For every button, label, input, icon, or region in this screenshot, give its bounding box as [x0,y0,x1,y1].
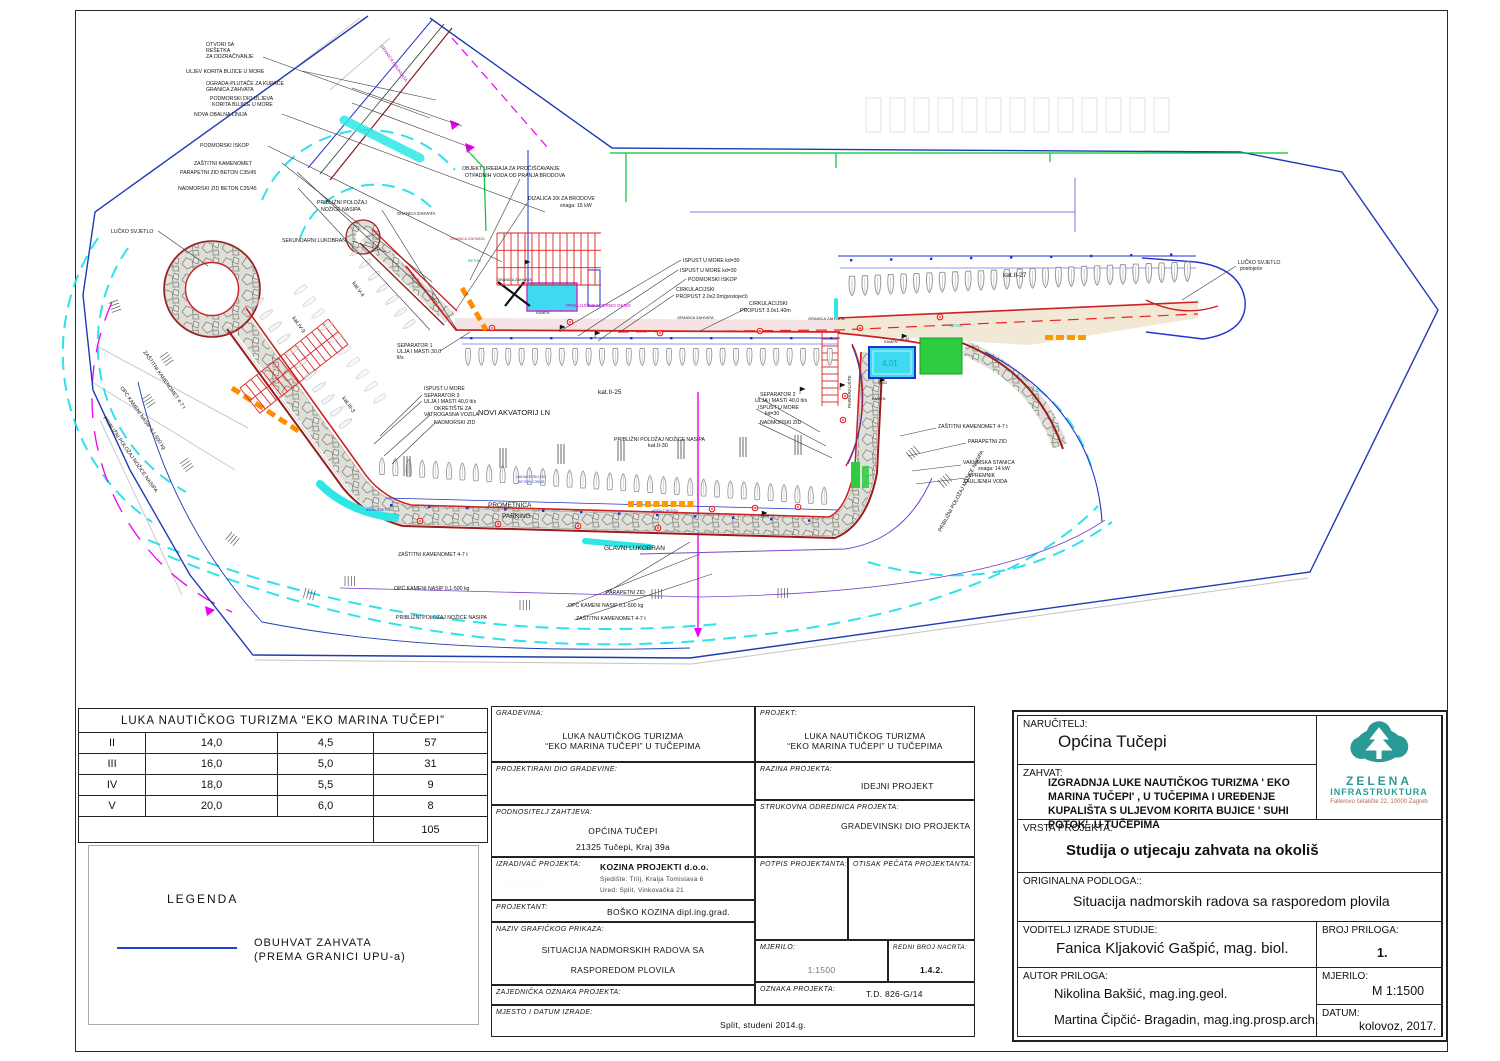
map-label: +1.63 [878,381,887,385]
cell-razina: RAZINA PROJEKTA: IDEJNI PROJEKT [755,762,975,800]
table-total-row: 105 [79,817,488,843]
cell-zahvat: ZAHVAT: IZGRADNJA LUKE NAUTIČKOG TURIZMA… [1018,765,1317,820]
legend-box: LEGENDA OBUHVAT ZAHVATA (PREMA GRANICI U… [88,845,479,1025]
cell-mjesto-datum: MJESTO I DATUM IZRADE: Split, studeni 20… [491,1005,975,1037]
cell-potpis: POTPIS PROJEKTANTA: [755,857,848,940]
cadastral-lines [92,18,1308,664]
map-label: kat.IV-9 [290,316,306,335]
map-label: NOVI AKVATORIJ LN [478,408,550,417]
map-label: PRIKLJUČNO MJERNO OKNO [566,302,631,308]
violet-lines [340,478,1105,597]
existing-structures [866,98,1169,132]
map-label: KAMEN [872,397,886,401]
travel-lift-icon [498,282,530,306]
legend-item-label: OBUHVAT ZAHVATA (PREMA GRANICI UPU-a) [254,936,406,965]
map-label: ISPUST U MORE [424,386,465,392]
map-label: ULJA I MASTI 40,0 lt/s [755,398,808,404]
map-label: PRIBLIŽNI POLOŽAJ [317,198,367,206]
stamp-fineprint: ········································… [500,884,578,888]
map-label: BETON [468,259,481,263]
map-label: kd=30 [765,411,779,417]
cell-vrsta: VRSTA PROJEKTA: Studija o utjecaju zahva… [1018,820,1442,873]
map-label: PROPUST 3.0x1.40m [740,308,791,314]
map-label: GRANICA ZAHVATA [497,278,532,282]
map-label: kat.II-25 [598,389,622,396]
map-label: OPĆ KAMENI NASIP 0,1-500 kg [394,585,470,592]
map-label: ZAŠTITNI KAMENOMET 4-7 t [576,615,646,622]
map-label: lt/s [397,355,404,361]
cell-gradevina: GRADEVINA: LUKA NAUTIČKOG TURIZMA “EKO M… [491,706,755,762]
cell-projektirani: PROJEKTIRANI DIO GRADEVINE: [491,762,755,805]
bollard-symbols [390,253,1172,521]
map-label: postojeće [1240,266,1262,272]
map-label: snaga: 14 kW [978,466,1010,472]
legend-title: LEGENDA [167,892,238,906]
map-label: KAMEN [536,311,550,315]
map-label: NOVA OBALNA LINIJA [194,112,248,118]
map-label: PARKING [502,513,531,520]
map-label: OPĆ KAMENI NASIP 0,1-500 kg [118,385,167,451]
map-label: OTPADNIH VODA OD PRANJA BRODOVA [465,173,566,179]
map-label: ULJEV KORITA BUJICE U MORE [186,69,265,75]
table-row: II14,0 4,557 [79,733,488,754]
map-label: NADMORSKI ZID [434,420,475,426]
map-label: LUČKO SVJETLO [111,228,153,235]
zelena-infrastruktura-logo: ZELENA INFRASTRUKTURA Fallerovo šetališt… [1317,716,1441,805]
cell-strukovna: STRUKOVNA ODREDNICA PROJEKTA: GRADEVINSK… [755,800,975,857]
moored-boats [251,246,1190,504]
cell-zajednicka: ZAJEDNIČKA OZNAKA PROJEKTA: [491,985,755,1005]
map-label: PODMORSKI ISKOP [200,143,250,149]
map-label: PARAPETNI ZID [606,590,645,596]
map-label: OPĆ KAMENI NASIP 0,1-500 kg [568,602,644,609]
map-label: PRIBLIŽNI POLOŽAJ NOŽICE NASIPA [936,448,986,533]
cell-otisak: OTISAK PEČATA PROJEKTANTA: [848,857,975,940]
cell-narucitelj: NARUČITELJ: Općina Tučepi [1018,716,1317,765]
map-label: ISPUST U MORE kd=30 [683,258,740,264]
map-label: PODMORSKI ISKOP [688,277,738,283]
map-label: +1.28 [760,514,769,518]
cell-voditelj: VODITELJ IZRADE STUDIJE: Fanica Kljakovi… [1018,922,1317,968]
sheet: { "vessel_table": { "title": "LUKA NAUTI… [0,0,1500,1061]
cell-naziv: NAZIV GRAFIČKOG PRIKAZA: SITUACIJA NADMO… [491,922,755,985]
map-label: +1.44 [900,337,909,341]
cell-oznaka: OZNAKA PROJEKTA: T.D. 826-G/14 [755,982,975,1005]
map-label: GRANICA OBUHVATA [379,44,408,83]
map-label: kat.II-30 [648,443,668,449]
cell-logo: ZELENA INFRASTRUKTURA Fallerovo šetališt… [1317,716,1442,820]
map-label: GRANICA ZAHVATA [397,211,436,216]
map-label: 4.01 [882,359,898,368]
study-title-block-inner: NARUČITELJ: Općina Tučepi ZAHVAT: IZGRAD… [1017,715,1443,1037]
map-label: PARAPETNI ZID [968,439,1007,445]
map-label: OGRADA-PLUTAČE ZA KUPAČE [206,80,284,87]
map-label: ULJA I MASTI 40,0 lt/s [424,399,477,405]
map-label: NADMORSKI ZID BETON C35/45 [178,186,257,192]
cell-projektant: PROJEKTANT: BOŠKO KOZINA dipl.ing.grad. [491,900,755,922]
cell-autor: AUTOR PRILOGA: Nikolina Bakšić, mag.ing.… [1018,968,1317,1036]
map-label: PROMETNICA [488,502,532,509]
cell-izradivac: IZRADIVAČ PROJEKTA: ····················… [491,857,755,900]
map-label: VATROGASNA VOZILA [424,412,479,418]
breakwater-stones [165,225,1060,536]
map-label: BETON [950,324,963,328]
cell-mjerilo-study: MJERILO: M 1:1500 [1317,968,1442,1005]
map-label: GLAVNI LUKOBRAN [604,545,665,552]
map-label: snaga: 15 kW [560,203,592,209]
table-row: III16,0 5,031 [79,754,488,775]
map-label: KORITA BUJICE U MORE [212,102,273,108]
map-label: OBJEKT UREĐAJA ZA PROČIŠĆAVANJE [462,165,560,172]
map-label: ZAŠTITNI KAMENOMET [194,160,253,167]
cell-broj-priloga: BROJ PRILOGA: 1. [1317,922,1442,968]
map-label: OKRETIŠTE ZA [434,405,472,412]
map-label: ISPUST U MORE kd=30 [680,268,737,274]
cell-redni-broj: REDNI BROJ NACRTA: 1.4.2. [888,940,975,982]
map-label: GRANICA ZAHVATA [677,315,714,320]
map-label: SEKUNDARNI LUKOBRAN [282,238,346,244]
table-row: V20,0 6,08 [79,796,488,817]
cell-podnositelj: PODNOSITELJ ZAHTJEVA: OPĆINA TUČEPI 2132… [491,805,755,857]
map-label: NADMORSKI ZID [516,475,546,479]
map-label: kat.II-27 [1003,272,1027,279]
map-label: PARAPETNI ZID BETON C35/45 [180,170,256,176]
cell-mjerilo: MJERILO: 1:1500 [755,940,888,982]
study-title-block: NARUČITELJ: Općina Tučepi ZAHVAT: IZGRAD… [1012,710,1448,1042]
map-label: PRIBLIŽNI POLOŽAJ NOŽICE NASIPA [614,435,706,443]
vessel-category-table: LUKA NAUTIČKOG TURIZMA “EKO MARINA TUČEP… [78,708,488,843]
map-label: BETON C35/45 [518,480,544,484]
vessel-total: 105 [374,817,488,843]
map-label: GRANICA ZAHVATA [206,87,254,93]
map-label: DIZALICA 20t ZA BRODOVE [528,196,595,202]
legend-line-sample [117,947,237,949]
map-label: PRIBLIŽNI POLOŽAJ NOŽICE NASIPA [396,613,488,621]
map-label: GRANICA ZAHVATA [808,316,845,321]
map-label: CIRKULACIJSKI [676,287,715,293]
map-label: ASFALT BETON [366,508,392,512]
map-label: CIRKULACIJSKI [749,301,788,307]
map-label: kat.V-4 [350,281,365,298]
cell-projekt: PROJEKT: LUKA NAUTIČKOG TURIZMA “EKO MAR… [755,706,975,762]
map-label: KAMEN [884,340,898,344]
map-label: NADMORSKI ZID [760,420,801,426]
map-label: ASFALT BETON [652,509,678,513]
map-label: ZAŠTITNI KAMENOMET 4-7 t [398,551,468,558]
map-label: REŠETKA [206,47,231,54]
cell-datum: DATUM: kolovoz, 2017. [1317,1005,1442,1036]
cell-podloga: ORIGINALNA PODLOGA:: Situacija nadmorski… [1018,873,1442,922]
map-label: ZA ODZRAČIVANJE [206,53,254,60]
map-label: NOŽICE NASIPA [321,205,361,213]
map-label: ZAŠTITNI KAMENOMET 4-7 t [938,423,1008,430]
map-label: kat.III-3 [340,396,355,414]
map-label: PARKIRALIŠTE [846,375,852,408]
map-label: GRANICA ZAHVATA [450,237,485,241]
map-label: PROPUST 2.0x2.0m(postojeći) [676,294,748,300]
site-plan-drawing: OTVORI SAREŠETKAZA ODZRAČIVANJEULJEV KOR… [0,0,1500,705]
vessel-table-title: LUKA NAUTIČKOG TURIZMA “EKO MARINA TUČEP… [79,709,488,733]
table-row: IV18,0 5,59 [79,775,488,796]
logo-cloud-tree-icon [1340,718,1418,770]
map-label: LUČKO SVJETLO [1238,259,1280,266]
